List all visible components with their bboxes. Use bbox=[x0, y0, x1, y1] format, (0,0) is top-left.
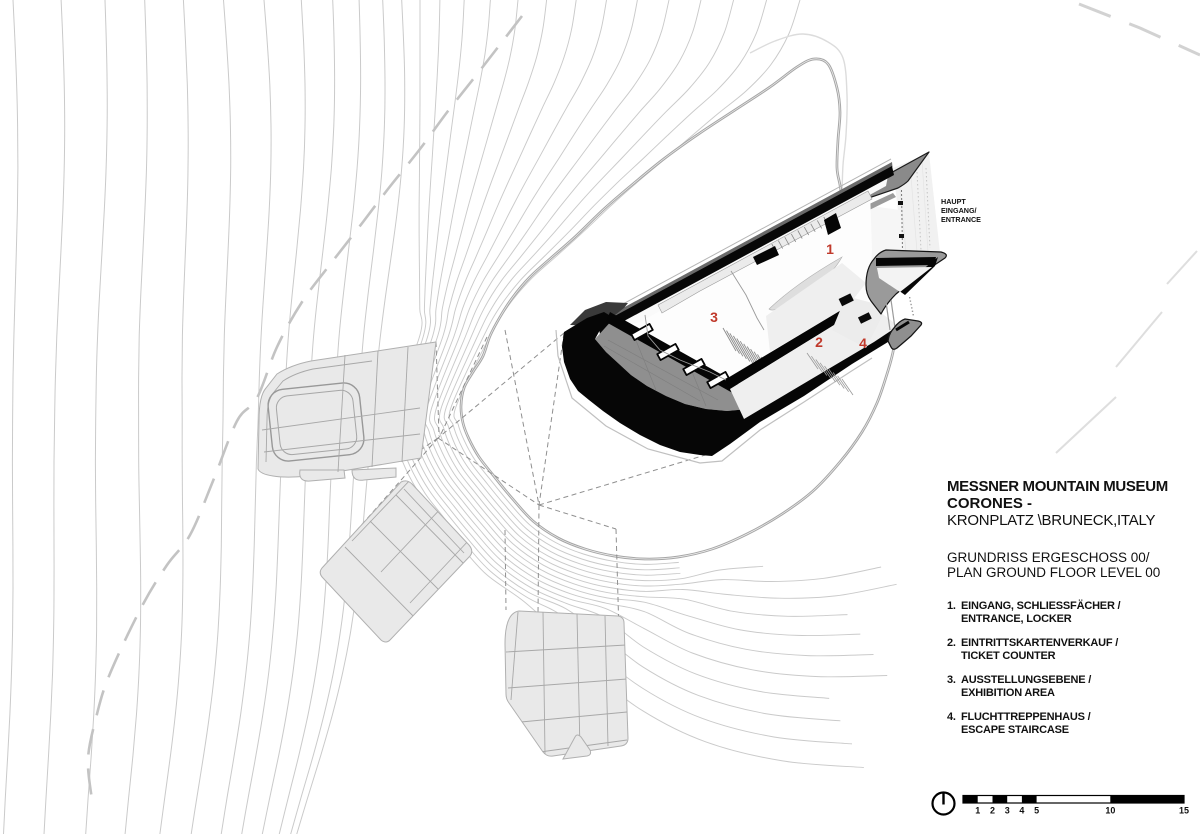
svg-text:15: 15 bbox=[1179, 806, 1189, 816]
svg-text:EINGANG/: EINGANG/ bbox=[941, 206, 977, 215]
svg-text:1: 1 bbox=[975, 806, 980, 816]
svg-text:4.: 4. bbox=[947, 711, 956, 723]
svg-text:CORONES -: CORONES - bbox=[947, 495, 1032, 512]
svg-text:EINTRITTSKARTENVERKAUF /: EINTRITTSKARTENVERKAUF / bbox=[961, 637, 1118, 649]
svg-text:3.: 3. bbox=[947, 674, 956, 686]
svg-text:4: 4 bbox=[859, 335, 867, 351]
svg-text:ENTRANCE: ENTRANCE bbox=[941, 215, 981, 224]
svg-text:2: 2 bbox=[815, 334, 823, 350]
svg-text:5: 5 bbox=[1034, 806, 1039, 816]
svg-text:1: 1 bbox=[826, 241, 834, 257]
svg-text:KRONPLATZ \BRUNECK,ITALY: KRONPLATZ \BRUNECK,ITALY bbox=[947, 512, 1155, 529]
svg-text:3: 3 bbox=[1005, 806, 1010, 816]
svg-text:3: 3 bbox=[710, 309, 718, 325]
svg-text:2.: 2. bbox=[947, 637, 956, 649]
svg-text:ENTRANCE, LOCKER: ENTRANCE, LOCKER bbox=[961, 613, 1072, 625]
svg-text:HAUPT: HAUPT bbox=[941, 197, 966, 206]
svg-text:AUSSTELLUNGSEBENE /: AUSSTELLUNGSEBENE / bbox=[961, 674, 1091, 686]
svg-text:EXHIBITION AREA: EXHIBITION AREA bbox=[961, 687, 1055, 699]
svg-text:EINGANG, SCHLIESSFÄCHER /: EINGANG, SCHLIESSFÄCHER / bbox=[961, 599, 1121, 612]
svg-text:GRUNDRISS ERGESCHOSS 00/: GRUNDRISS ERGESCHOSS 00/ bbox=[947, 550, 1150, 565]
svg-text:TICKET COUNTER: TICKET COUNTER bbox=[961, 650, 1056, 662]
svg-text:PLAN GROUND FLOOR LEVEL 00: PLAN GROUND FLOOR LEVEL 00 bbox=[947, 565, 1160, 580]
svg-text:FLUCHTTREPPENHAUS /: FLUCHTTREPPENHAUS / bbox=[961, 711, 1091, 723]
svg-text:4: 4 bbox=[1019, 806, 1024, 816]
svg-text:1.: 1. bbox=[947, 600, 956, 612]
svg-text:MESSNER MOUNTAIN MUSEUM: MESSNER MOUNTAIN MUSEUM bbox=[947, 478, 1168, 495]
svg-text:10: 10 bbox=[1105, 806, 1115, 816]
svg-text:ESCAPE STAIRCASE: ESCAPE STAIRCASE bbox=[961, 724, 1069, 736]
svg-text:2: 2 bbox=[990, 806, 995, 816]
